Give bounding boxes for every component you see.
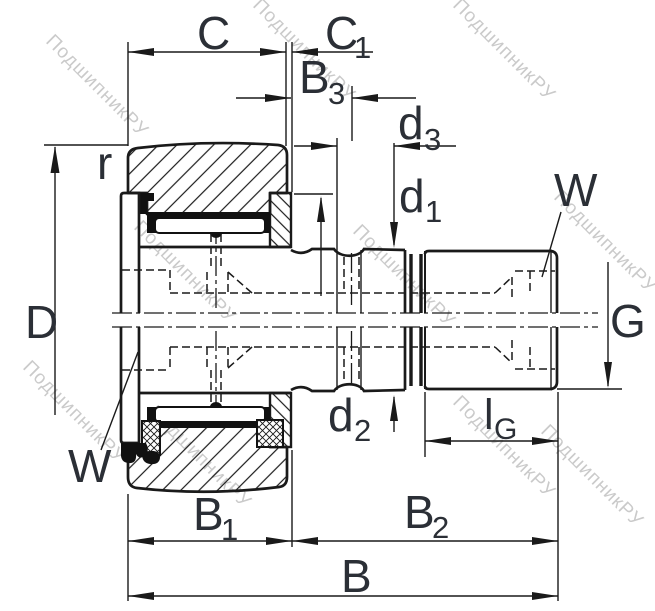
stud-flange-lower (121, 327, 139, 443)
centerlines (112, 224, 598, 416)
label-r: r (97, 137, 112, 189)
dimension-d2 (390, 395, 398, 432)
bearing-drawing-canvas: ПодшипникРУ ПодшипникРУ ПодшипникРУ Подш… (0, 0, 655, 611)
dimension-B2 (292, 537, 558, 545)
leader-w-bottom (101, 352, 138, 450)
thread-crest-top (425, 251, 552, 254)
roller-lower-section (121, 327, 291, 492)
label-W-top: W (554, 164, 598, 216)
label-C1-sub: 1 (354, 30, 371, 65)
label-B3-sub: 3 (328, 76, 345, 111)
outer-ring-upper (128, 143, 287, 214)
cage-end (147, 407, 156, 422)
label-B: B (341, 550, 372, 602)
label-B1-base: B (193, 488, 224, 540)
label-G: G (610, 295, 646, 347)
label-lG-sub: G (494, 413, 517, 446)
watermark-text: ПодшипникРУ (448, 392, 559, 503)
label-d1-sub: 1 (425, 194, 442, 229)
label-d2-sub: 2 (354, 413, 371, 448)
label-d1-base: d (399, 170, 425, 222)
label-d3-base: d (398, 97, 424, 149)
needle-rollers-lower (155, 407, 265, 422)
lube-port-notch (210, 402, 222, 407)
lube-port-notch (210, 233, 222, 238)
label-d2-base: d (328, 389, 354, 441)
watermark-text: ПодшипникРУ (536, 421, 647, 532)
label-C: C (197, 7, 230, 59)
watermark-text: ПодшипникРУ (41, 31, 152, 142)
watermark-text: ПодшипникРУ (448, 0, 559, 106)
stud-end-face-upper (551, 251, 557, 313)
cage-end (147, 218, 156, 233)
label-B2-sub: 2 (432, 510, 449, 545)
stud-pin-upper (291, 138, 557, 313)
label-W-bottom: W (68, 440, 112, 492)
dimension-d1 (390, 222, 398, 248)
label-B1-sub: 1 (221, 512, 238, 547)
thread-crest-bottom (425, 386, 552, 389)
cage-end (264, 218, 270, 233)
label-B3-base: B (299, 51, 330, 103)
stud-end-face-lower (551, 327, 557, 389)
label-d3-sub: 3 (424, 122, 441, 157)
end-washer-upper (270, 193, 291, 247)
stud-flange-upper (121, 193, 139, 313)
label-B2-base: B (404, 486, 435, 538)
label-lG-base: l (484, 391, 494, 439)
needle-rollers-upper (155, 218, 265, 233)
technical-drawing-page: ПодшипникРУ ПодшипникРУ ПодшипникРУ Подш… (0, 0, 655, 611)
seal-right-hatch (257, 420, 283, 447)
label-D: D (25, 296, 58, 348)
stud-pin-lower (291, 327, 557, 391)
